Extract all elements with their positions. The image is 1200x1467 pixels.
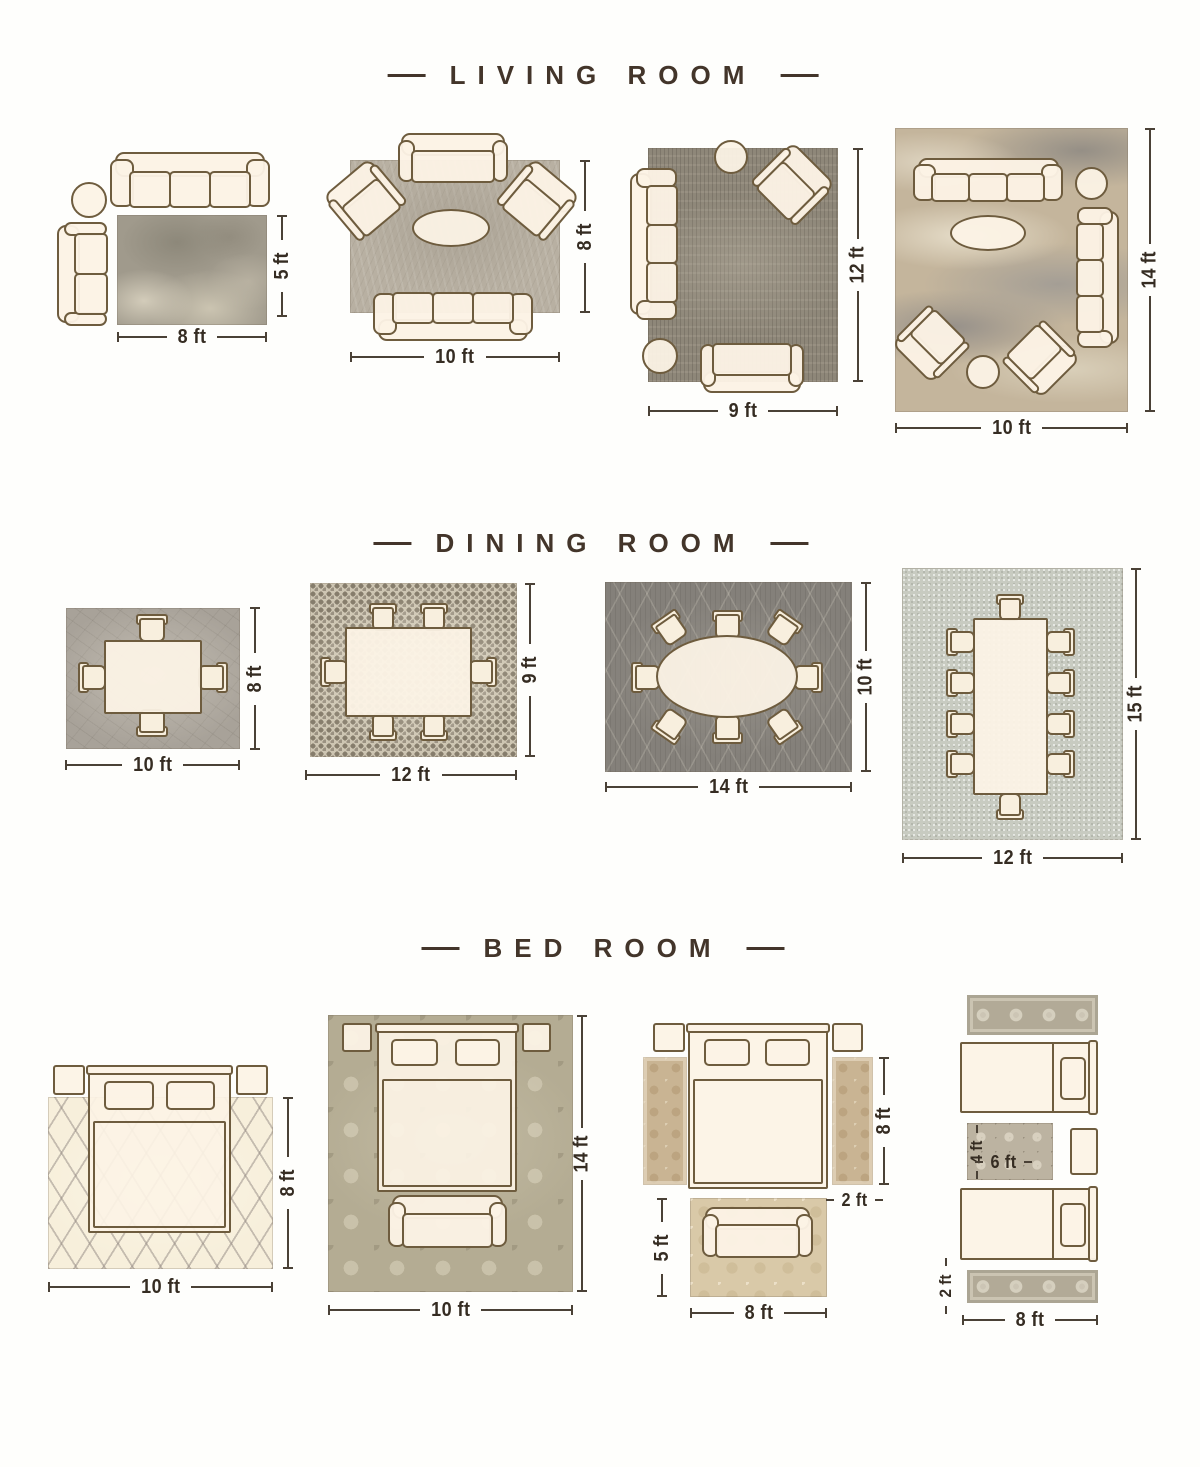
height-dimension: 10 ft [856, 582, 876, 772]
sofa-seat [931, 173, 1045, 202]
dining-chair [136, 614, 168, 642]
height-dimension: 12 ft [848, 148, 868, 382]
title-dash [373, 542, 411, 545]
dimension-label: 10 ft [435, 346, 474, 369]
sofa-cushion [432, 292, 474, 324]
dimension-line [883, 1057, 885, 1095]
nightstand [236, 1065, 268, 1095]
bench-cushion [402, 1213, 492, 1248]
dimension-label: 8 ft [1016, 1309, 1045, 1332]
dimension-line [287, 1097, 289, 1157]
sofa-three-seat [1076, 207, 1119, 348]
nightstand [1070, 1128, 1098, 1175]
dimension-label: 14 ft [709, 776, 748, 799]
dimension-line [581, 1015, 583, 1128]
runner-rug-2x8 [643, 1057, 687, 1185]
dining-chair [794, 662, 823, 693]
height-dimension: 5 ft [652, 1198, 672, 1297]
sofa-cushion [74, 233, 108, 275]
dimension-line [875, 1199, 883, 1201]
twin-bed [960, 1188, 1098, 1260]
dining-chair [320, 657, 348, 687]
height-dimension: 14 ft [572, 1015, 592, 1292]
dining-chair [1046, 628, 1075, 656]
dimension-line [661, 1198, 663, 1222]
dimension-label: 8 ft [178, 326, 207, 349]
loveseat [398, 133, 508, 183]
dimension-line [1043, 857, 1123, 859]
dimension-label: 10 ft [840, 658, 892, 695]
headboard [1088, 1186, 1098, 1262]
dimension-line [1149, 128, 1151, 244]
section-title-text: BED ROOM [484, 933, 723, 964]
dimension-label: 8 ft [858, 1108, 910, 1135]
dimension-label: 10 ft [431, 1299, 470, 1322]
runner-width-dimension: 2 ft [936, 1258, 956, 1314]
dimension-line [857, 148, 859, 239]
dimension-line [1024, 1161, 1032, 1163]
dimension-line [945, 1258, 947, 1266]
loveseat [700, 343, 804, 393]
sofa-cushion [1006, 173, 1045, 202]
dining-chair [369, 713, 397, 741]
dimension-label: 2 ft [926, 1275, 966, 1298]
height-dimension: 14 ft [1140, 128, 1160, 412]
side-table [714, 140, 748, 174]
dimension-line [1042, 427, 1128, 429]
sofa-cushion [411, 150, 495, 183]
dimension-label: 8 ft [262, 1170, 314, 1197]
sofa-cushion [1076, 223, 1104, 261]
dimension-label: 10 ft [141, 1276, 180, 1299]
dimension-label: 8 ft [744, 1302, 773, 1325]
dimension-line [768, 410, 838, 412]
sofa-three-seat [373, 292, 533, 341]
dimension-line [661, 1274, 663, 1298]
dimension-line [48, 1286, 130, 1288]
title-dash [771, 542, 809, 545]
sofa-three-seat [913, 158, 1063, 202]
sofa-cushion [1076, 295, 1104, 333]
bed [377, 1023, 517, 1192]
dimension-line [584, 160, 586, 211]
dimension-line [690, 1312, 734, 1314]
pillow [704, 1039, 750, 1066]
dimension-line [183, 764, 240, 766]
headboard [375, 1023, 519, 1033]
side-table [966, 355, 1000, 389]
dimension-line [902, 857, 982, 859]
pillow [104, 1081, 154, 1110]
width-dimension: 12 ft [305, 765, 517, 785]
dimension-label: 12 ft [832, 246, 884, 283]
dimension-line [281, 215, 283, 240]
title-dash [388, 74, 426, 77]
sofa-cushion [968, 173, 1007, 202]
nightstand [832, 1023, 863, 1052]
sofa-seat [715, 1224, 799, 1258]
sofa-cushion [472, 292, 514, 324]
dimension-line [865, 703, 867, 772]
sofa-two-seat [57, 222, 108, 326]
nightstand [653, 1023, 685, 1052]
bench [388, 1195, 507, 1248]
bed [688, 1023, 828, 1189]
dining-chair [1046, 669, 1075, 697]
dimension-line [217, 336, 267, 338]
nightstand [53, 1065, 85, 1095]
dimension-line [1135, 730, 1137, 840]
nightstand [522, 1023, 551, 1052]
dimension-line [1135, 568, 1137, 678]
rug-8x5 [117, 215, 267, 325]
sofa-cushion [646, 262, 678, 303]
blanket [693, 1079, 823, 1184]
dimension-line [584, 263, 586, 314]
dimension-line [581, 1180, 583, 1293]
dimension-line [442, 774, 517, 776]
dimension-line [254, 607, 256, 653]
dimension-line [945, 1306, 947, 1314]
sofa-seat [392, 292, 514, 324]
dimension-line [281, 292, 283, 317]
dining-chair [420, 713, 448, 741]
dimension-label: 14 ft [556, 1135, 608, 1172]
dining-chair [712, 715, 743, 744]
dimension-line [191, 1286, 273, 1288]
sofa-seat [646, 185, 678, 304]
dining-chair [1046, 710, 1075, 738]
dining-chair [1046, 750, 1075, 778]
dimension-line [305, 774, 380, 776]
sofa-cushion [392, 292, 434, 324]
runner-rug-2x8 [967, 995, 1098, 1035]
sofa-seat [1076, 223, 1104, 333]
dining-chair [946, 628, 975, 656]
side-table [71, 182, 107, 218]
pillow [391, 1039, 438, 1066]
dimension-label: 2 ft [841, 1190, 867, 1211]
sofa-cushion [209, 171, 251, 208]
coffee-table [950, 215, 1026, 251]
height-dimension: 15 ft [1126, 568, 1146, 840]
accent-width-dimension: 6 ft [975, 1152, 1049, 1172]
headboard [86, 1065, 233, 1075]
dimension-label: 14 ft [1124, 251, 1176, 288]
dining-chair [78, 662, 106, 693]
dimension-line [826, 1199, 834, 1201]
dining-table [973, 618, 1048, 795]
sofa-seat [712, 343, 791, 376]
sofa-cushion [646, 224, 678, 265]
dimension-line [759, 786, 852, 788]
dimension-label: 9 ft [504, 657, 556, 684]
bench-seat [402, 1213, 492, 1248]
sofa-seat [411, 150, 495, 183]
dimension-line [976, 1171, 978, 1179]
dimension-label: 9 ft [729, 400, 758, 423]
dimension-line [254, 705, 256, 751]
height-dimension: 8 ft [575, 160, 595, 313]
height-dimension: 5 ft [272, 215, 292, 317]
side-table [642, 338, 678, 374]
dining-chair [996, 594, 1024, 621]
sofa-three-seat [110, 152, 270, 208]
dimension-line [481, 1309, 573, 1311]
dimension-label: 10 ft [133, 754, 172, 777]
sofa-cushion [169, 171, 211, 208]
dimension-line [117, 336, 167, 338]
pillow [455, 1039, 500, 1066]
dimension-label: 8 ft [559, 223, 611, 250]
dimension-label: 8 ft [229, 665, 281, 692]
dimension-line [529, 583, 531, 644]
title-dash [747, 947, 785, 950]
section-title-living-room: LIVING ROOM [388, 60, 819, 91]
width-dimension: 8 ft [690, 1303, 827, 1323]
dining-chair [996, 793, 1024, 820]
dimension-label: 5 ft [256, 253, 308, 280]
dimension-line [350, 356, 424, 358]
dimension-line [486, 356, 560, 358]
dimension-line [1149, 296, 1151, 412]
headboard [1088, 1040, 1098, 1115]
height-dimension: 9 ft [520, 583, 540, 757]
pillow [1060, 1057, 1086, 1100]
width-dimension: 14 ft [605, 777, 852, 797]
sofa-seat [74, 233, 108, 314]
dimension-line [962, 1319, 1005, 1321]
width-dimension: 9 ft [648, 401, 838, 421]
sofa-cushion [129, 171, 171, 208]
sofa-cushion [931, 173, 970, 202]
dimension-line [784, 1312, 828, 1314]
pillow [765, 1039, 810, 1066]
width-dimension: 10 ft [350, 347, 560, 367]
dimension-line [65, 764, 122, 766]
dimension-line [328, 1309, 420, 1311]
sofa-three-seat [630, 168, 678, 320]
dining-table-oval [656, 635, 798, 718]
dimension-label: 15 ft [1110, 685, 1162, 722]
dimension-line [529, 696, 531, 757]
bed [88, 1065, 231, 1233]
height-dimension: 8 ft [278, 1097, 298, 1269]
dining-chair [946, 669, 975, 697]
dining-chair [198, 662, 228, 693]
rug-size-guide: LIVING ROOM 5 ft 8 ft 8 [0, 0, 1200, 1467]
dimension-line [605, 786, 698, 788]
runner-rug-2x8 [967, 1270, 1098, 1303]
section-title-text: LIVING ROOM [450, 60, 757, 91]
section-title-dining-room: DINING ROOM [373, 528, 808, 559]
sofa-cushion [1076, 259, 1104, 297]
width-dimension: 12 ft [902, 848, 1123, 868]
dimension-label: 10 ft [992, 417, 1031, 440]
dining-table [345, 627, 472, 717]
pillow [1060, 1203, 1086, 1247]
blanket [382, 1079, 512, 1187]
runner-height-dimension: 8 ft [874, 1057, 894, 1185]
section-title-bed-room: BED ROOM [422, 933, 785, 964]
twin-bed [960, 1042, 1098, 1113]
dimension-line [648, 410, 718, 412]
dimension-label: 5 ft [636, 1234, 688, 1261]
bed-sheet-line [1052, 1188, 1054, 1260]
sofa-cushion [715, 1224, 799, 1258]
width-dimension: 10 ft [48, 1277, 273, 1297]
width-dimension: 10 ft [895, 418, 1128, 438]
dimension-line [1055, 1319, 1098, 1321]
headboard [686, 1023, 830, 1033]
title-dash [422, 947, 460, 950]
dimension-label: 12 ft [391, 764, 430, 787]
dining-chair [946, 750, 975, 778]
width-dimension: 8 ft [117, 327, 267, 347]
section-title-text: DINING ROOM [435, 528, 746, 559]
width-dimension: 10 ft [65, 755, 240, 775]
dining-chair [469, 657, 497, 687]
title-dash [780, 74, 818, 77]
dining-table [104, 640, 202, 714]
dimension-line [883, 1147, 885, 1185]
dimension-line [857, 291, 859, 382]
loveseat [702, 1207, 813, 1258]
dimension-label: 6 ft [990, 1152, 1016, 1173]
sofa-cushion [646, 185, 678, 226]
sofa-cushion [712, 343, 791, 376]
runner-width-dimension: 2 ft [826, 1190, 884, 1210]
bed-sheet-line [1052, 1042, 1054, 1113]
sofa-cushion [74, 273, 108, 315]
dining-chair [946, 710, 975, 738]
dimension-label: 12 ft [993, 847, 1032, 870]
dimension-line [976, 1125, 978, 1133]
sofa-seat [129, 171, 251, 208]
pillow [166, 1081, 215, 1110]
dimension-line [895, 427, 981, 429]
side-table [1075, 167, 1108, 200]
width-dimension: 8 ft [962, 1310, 1098, 1330]
coffee-table [412, 209, 490, 247]
height-dimension: 8 ft [245, 607, 265, 750]
width-dimension: 10 ft [328, 1300, 573, 1320]
dimension-line [865, 582, 867, 651]
blanket [93, 1121, 226, 1228]
dimension-line [975, 1161, 983, 1163]
nightstand [342, 1023, 372, 1052]
dimension-line [287, 1209, 289, 1269]
